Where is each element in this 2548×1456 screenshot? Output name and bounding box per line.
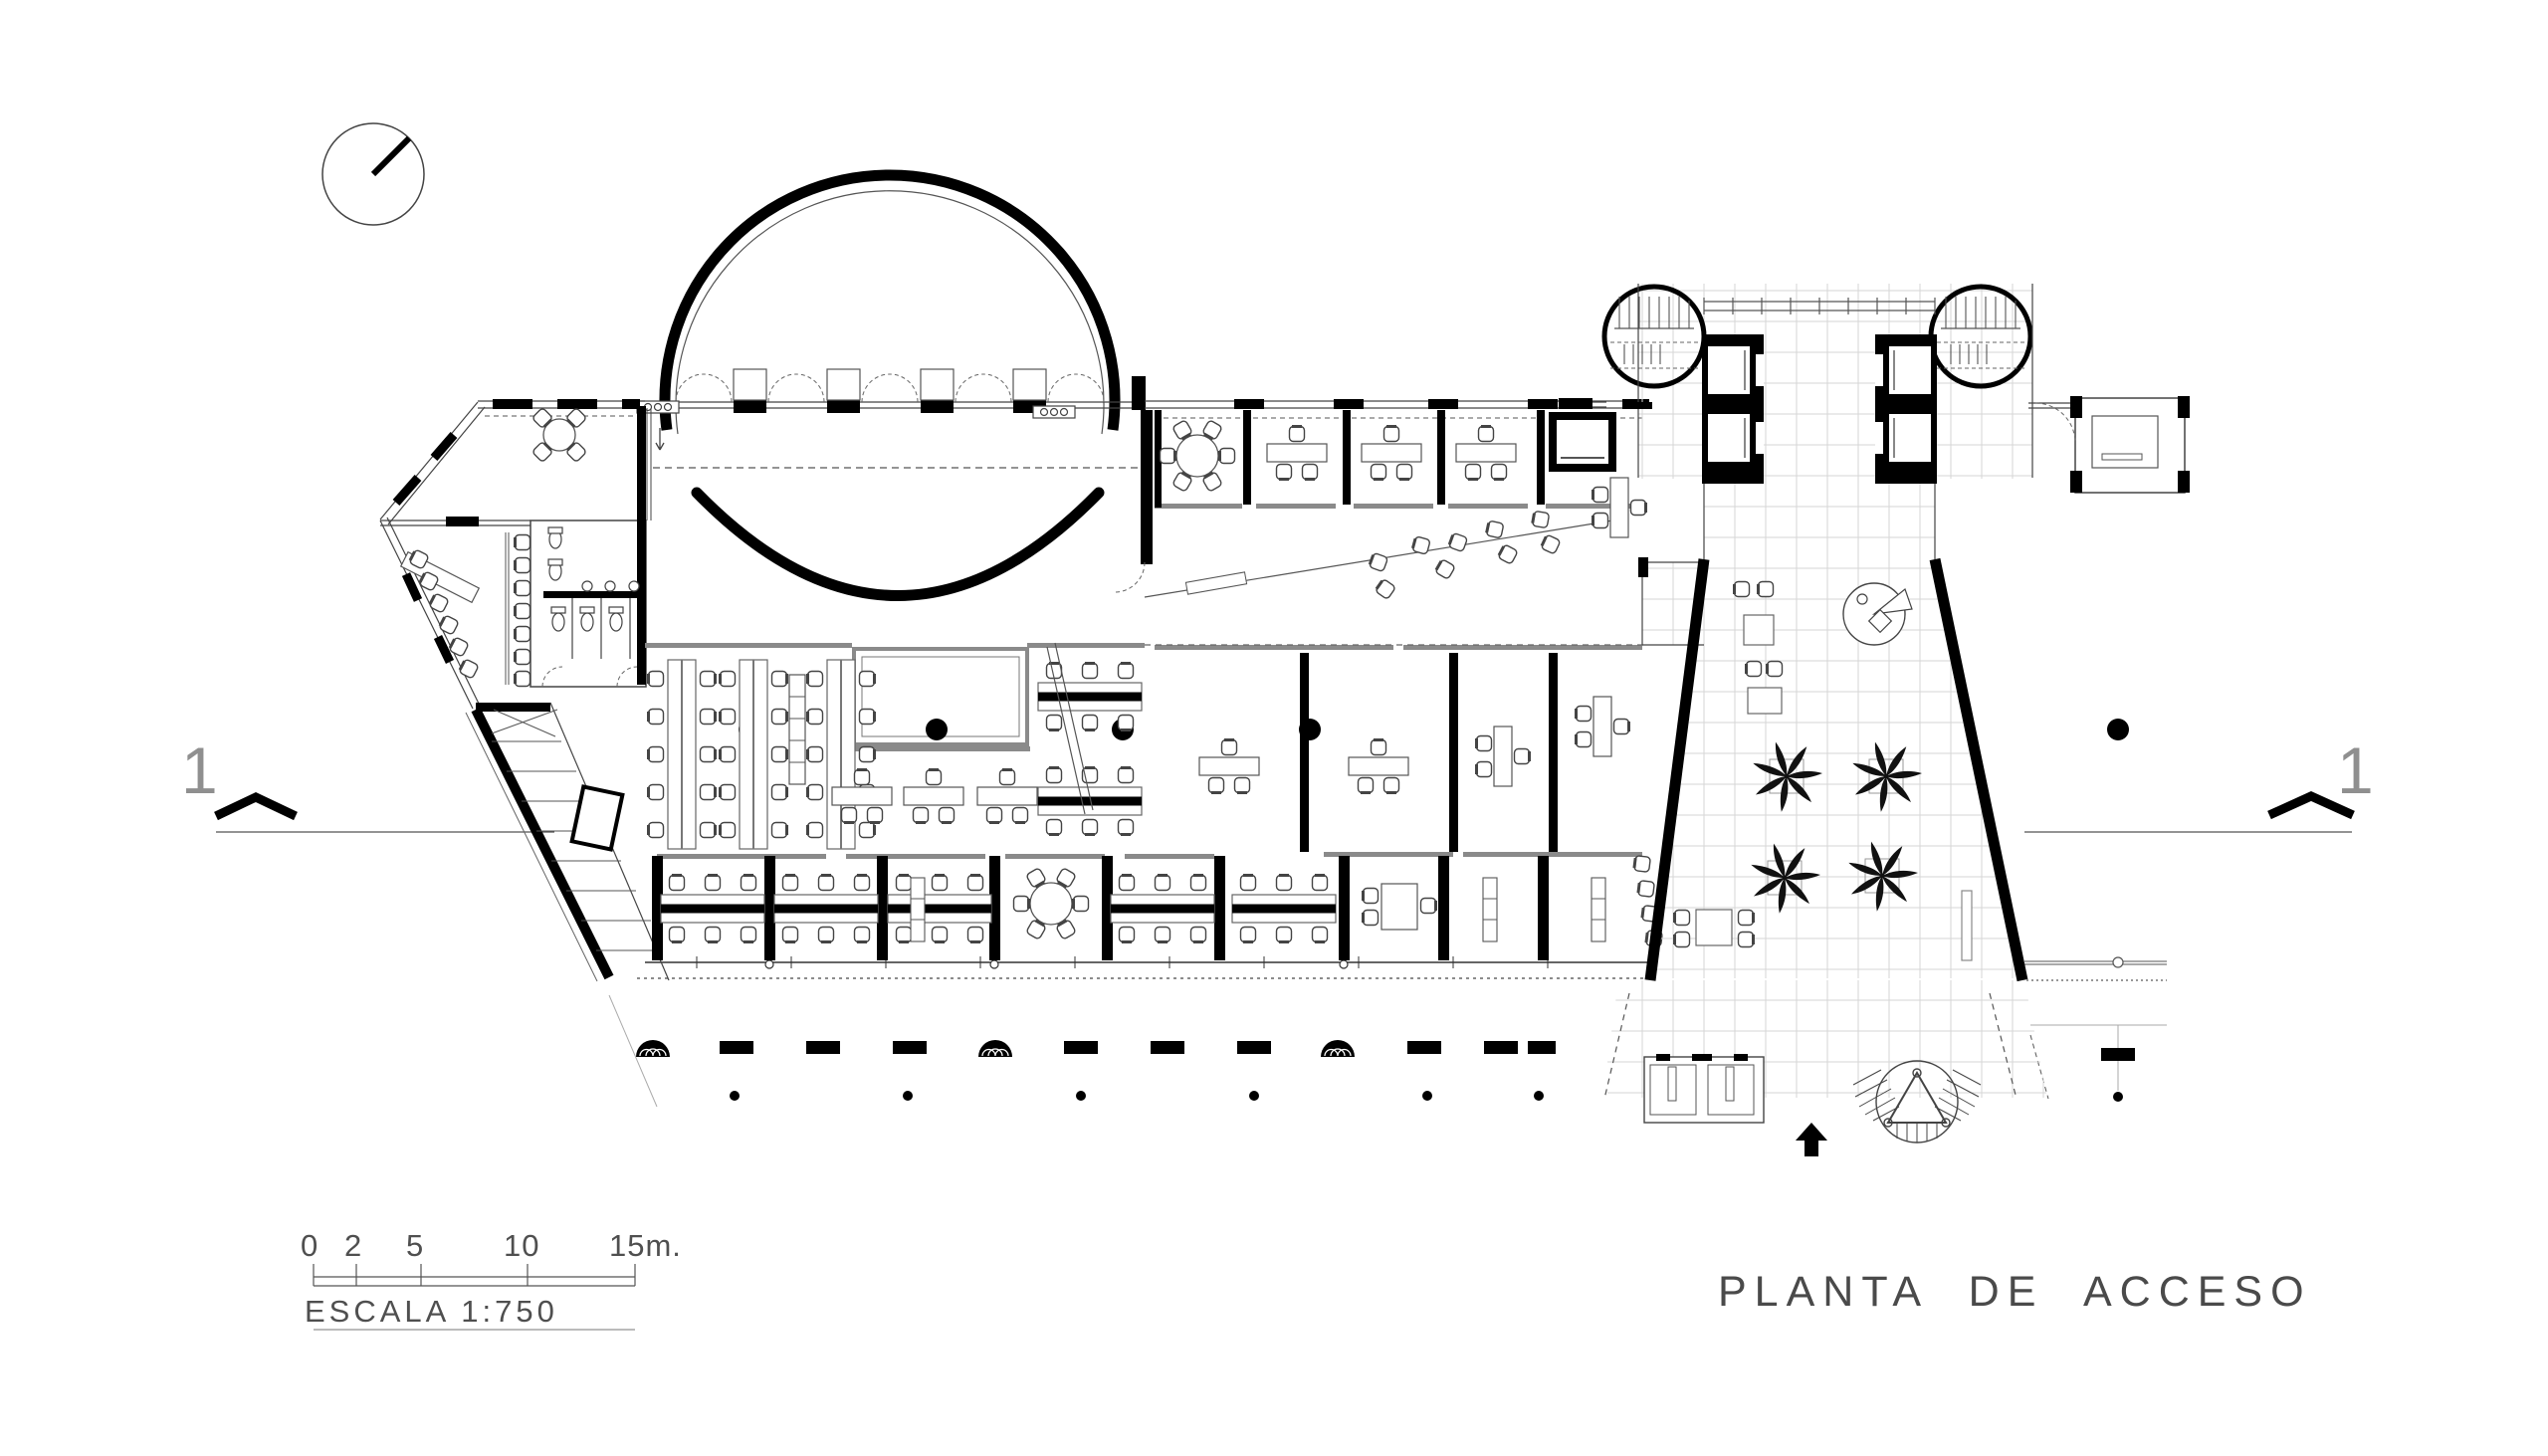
scale-tick-2: 2 bbox=[344, 1228, 362, 1264]
palm-tree-icon bbox=[1851, 740, 1922, 812]
entrance-arrow-icon bbox=[1796, 1123, 1827, 1156]
meeting-table-icon bbox=[1014, 868, 1089, 939]
palm-tree-icon bbox=[1750, 842, 1820, 914]
office-elevator bbox=[1549, 412, 1616, 472]
site-lines-right bbox=[2024, 719, 2167, 1102]
elevator-bank-left bbox=[1702, 334, 1764, 484]
structural-columns bbox=[739, 719, 1321, 740]
column-dot bbox=[2107, 719, 2129, 740]
plaza-wall-right bbox=[1935, 559, 2022, 980]
dome-auditorium bbox=[637, 175, 1146, 595]
planter-icon bbox=[1321, 1040, 1355, 1057]
scale-label: ESCALA 1:750 bbox=[305, 1294, 558, 1330]
stair-direction-arrow bbox=[656, 428, 664, 450]
side-room-right bbox=[2035, 396, 2190, 493]
meeting-room-rect bbox=[1364, 884, 1436, 930]
architectural-sheet: 1 1 0 2 5 10 15m. ESCALA 1:750 PLANTA DE… bbox=[0, 0, 2548, 1456]
floor-plan-drawing bbox=[0, 0, 2548, 1456]
sheet-title: PLANTA DE ACCESO bbox=[1718, 1268, 2312, 1317]
scale-tick-15: 15m. bbox=[609, 1228, 682, 1264]
palm-grove bbox=[1750, 740, 1922, 914]
scale-tick-5: 5 bbox=[406, 1228, 424, 1264]
north-indicator-icon bbox=[322, 123, 424, 225]
bollard-row bbox=[730, 1091, 1544, 1101]
circular-stair-feature-icon bbox=[1853, 1061, 1981, 1143]
section-cut-left-icon bbox=[216, 797, 554, 832]
elevator-bank-right bbox=[1875, 334, 1937, 484]
reception-kiosk bbox=[1843, 583, 1912, 645]
planter-icon bbox=[978, 1040, 1012, 1057]
annex-bar-lounge bbox=[380, 517, 531, 709]
stair-tower-left-icon bbox=[1604, 287, 1704, 386]
plaza-furniture bbox=[1675, 582, 1973, 961]
entrance-vestibule bbox=[1644, 1054, 1764, 1123]
bridge bbox=[1704, 298, 1935, 314]
planter-icon bbox=[636, 1040, 670, 1057]
meeting-table-icon bbox=[1161, 420, 1235, 492]
curved-stage-wall bbox=[697, 493, 1099, 596]
stair-wing bbox=[466, 703, 669, 981]
section-cut-right-icon bbox=[2024, 796, 2353, 832]
signage-pylon bbox=[1962, 891, 1972, 960]
stair-tower-right-icon bbox=[1931, 287, 2030, 386]
section-number-right: 1 bbox=[2337, 732, 2374, 808]
main-office-block bbox=[380, 399, 1662, 981]
scale-tick-0: 0 bbox=[301, 1228, 318, 1264]
office-row-lower bbox=[652, 856, 1662, 960]
palm-tree-icon bbox=[1752, 740, 1822, 812]
section-number-left: 1 bbox=[181, 732, 218, 808]
cellular-offices-upper-right bbox=[1047, 643, 1629, 852]
scale-tick-10: 10 bbox=[504, 1228, 539, 1264]
top-band-offices bbox=[1115, 410, 1646, 645]
tile-grid bbox=[1607, 284, 2080, 1099]
south-arcade bbox=[609, 956, 1650, 1107]
lobby-walls bbox=[1559, 284, 2072, 645]
